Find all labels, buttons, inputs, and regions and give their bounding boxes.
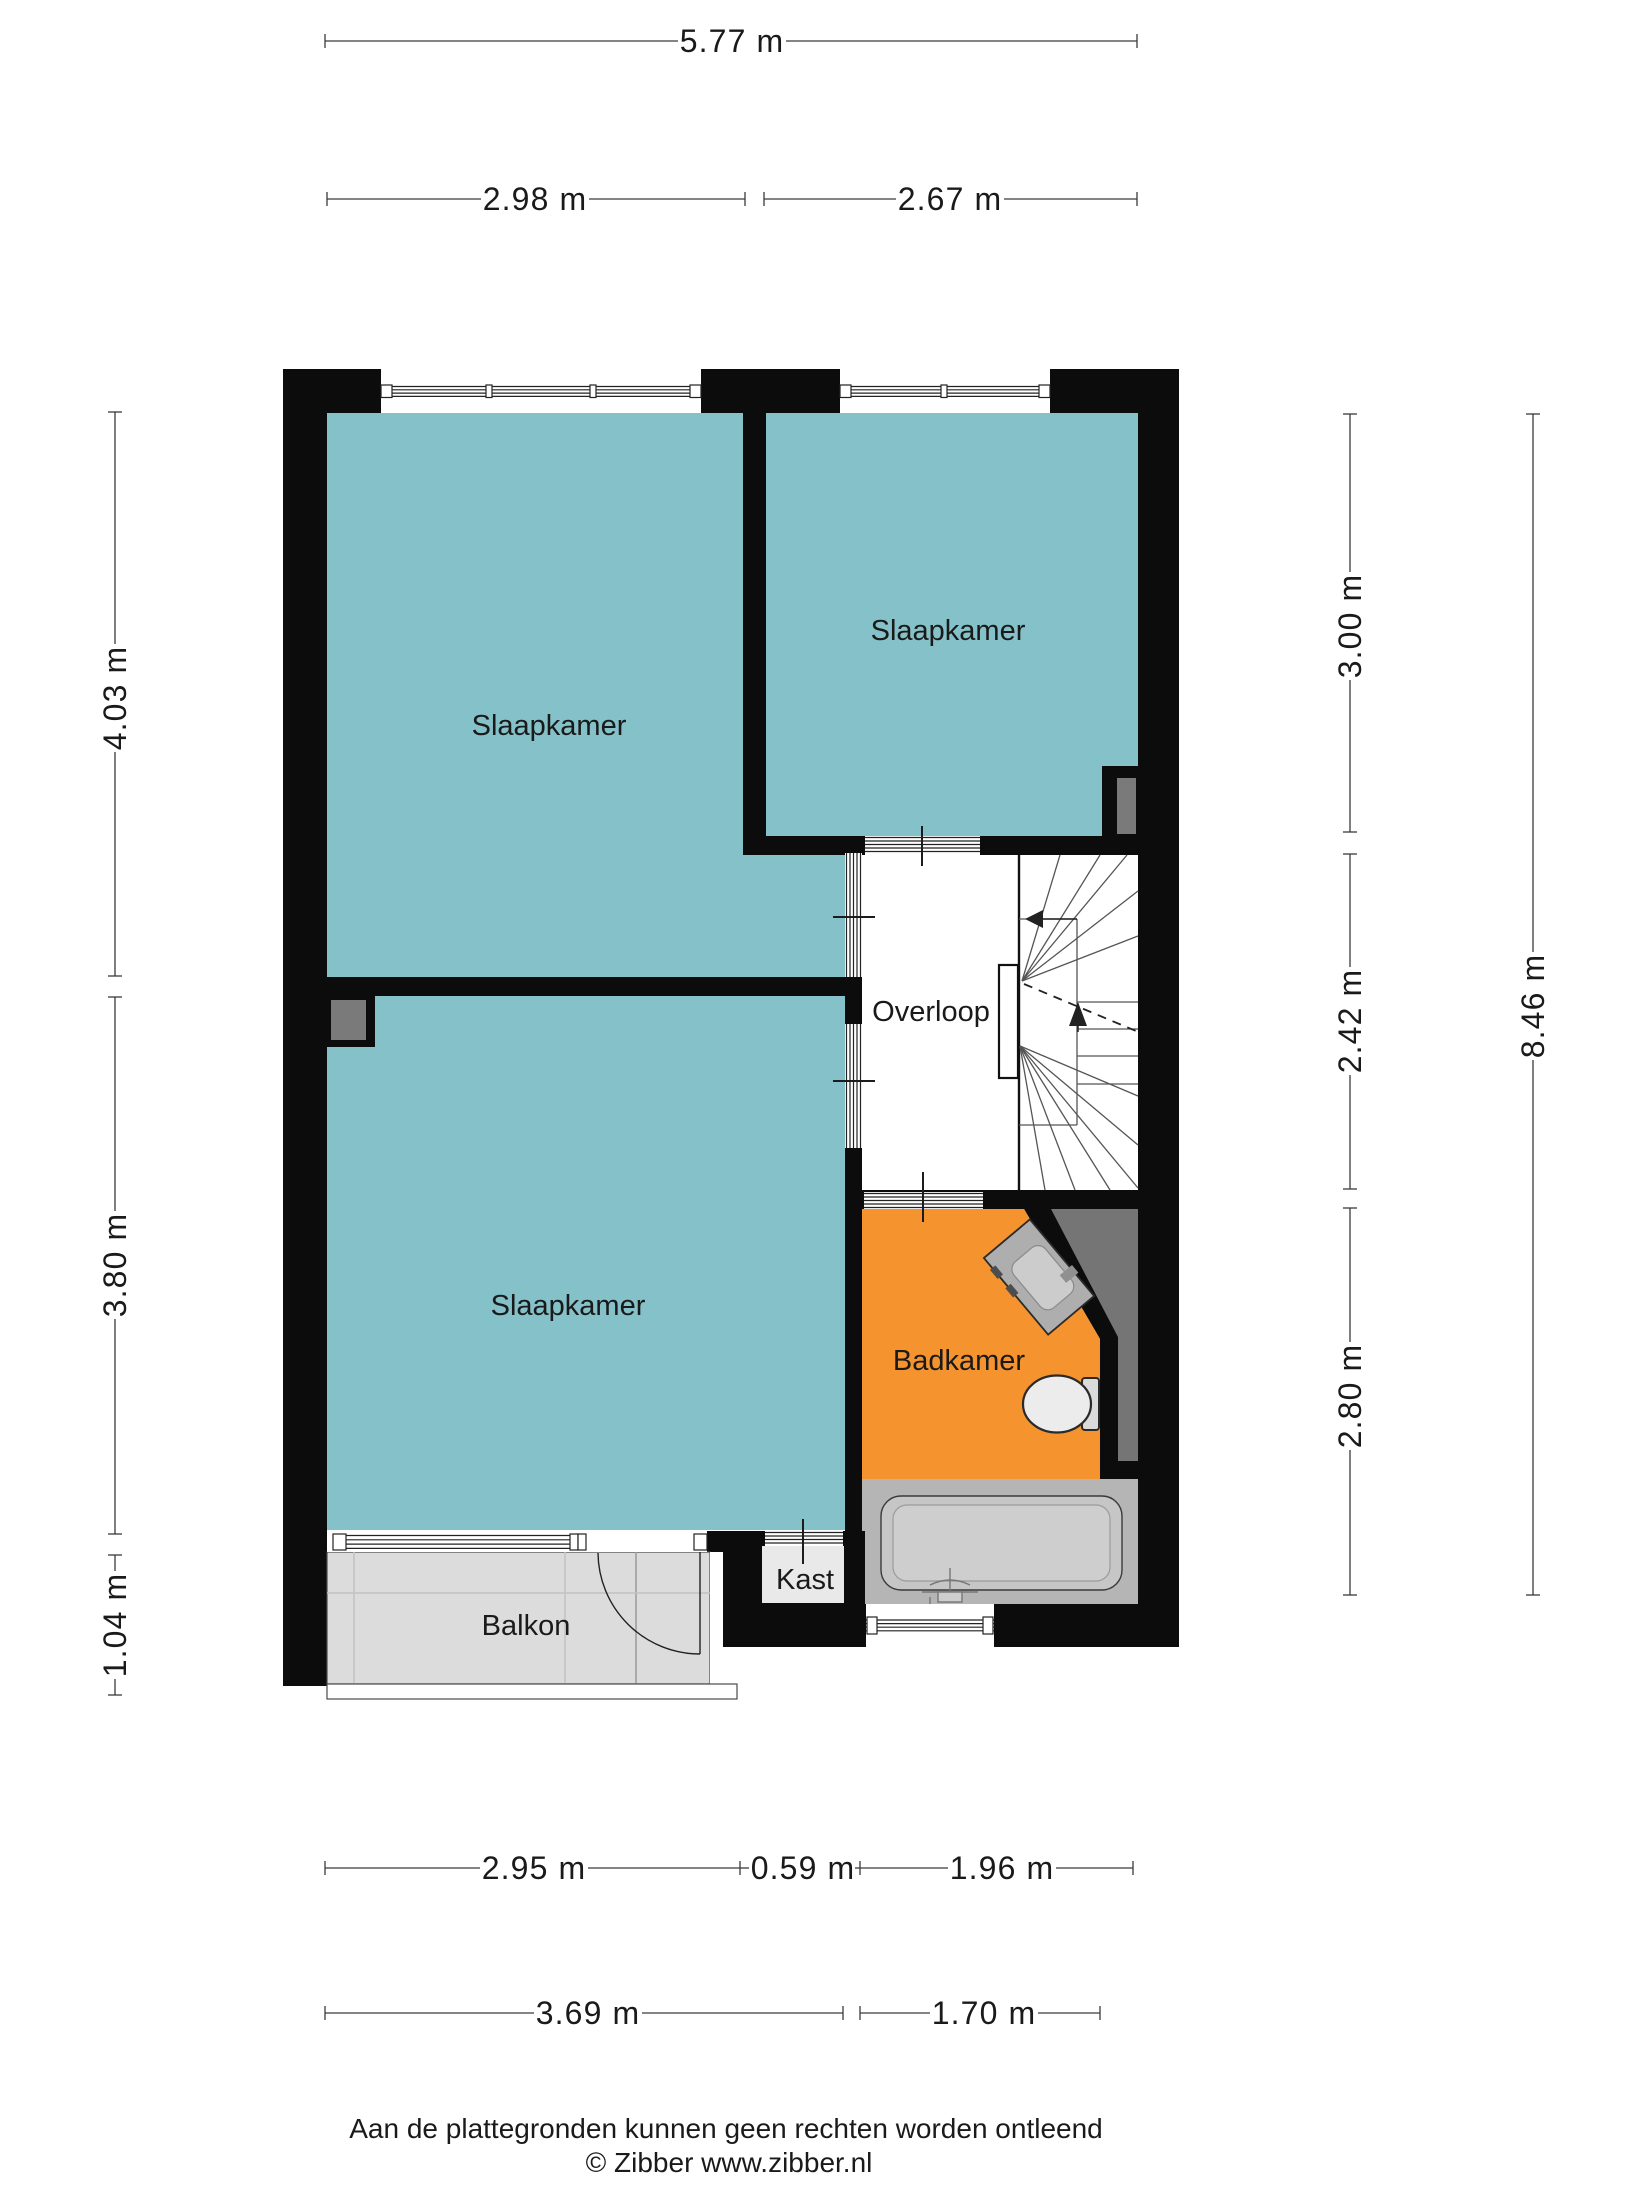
svg-text:2.95 m: 2.95 m — [482, 1850, 586, 1886]
svg-text:5.77 m: 5.77 m — [680, 23, 784, 59]
svg-text:Slaapkamer: Slaapkamer — [871, 615, 1026, 647]
svg-text:3.80 m: 3.80 m — [97, 1213, 133, 1317]
svg-text:1.70 m: 1.70 m — [932, 1995, 1036, 2031]
svg-text:Balkon: Balkon — [482, 1610, 571, 1642]
svg-text:2.67 m: 2.67 m — [898, 181, 1002, 217]
svg-text:1.04 m: 1.04 m — [97, 1573, 133, 1677]
svg-text:2.42 m: 2.42 m — [1332, 969, 1368, 1073]
svg-text:2.80 m: 2.80 m — [1332, 1344, 1368, 1448]
svg-text:Badkamer: Badkamer — [893, 1345, 1026, 1377]
svg-text:Aan de plattegronden kunnen ge: Aan de plattegronden kunnen geen rechten… — [349, 2113, 1102, 2144]
svg-text:0.59 m: 0.59 m — [751, 1850, 855, 1886]
svg-text:© Zibber www.zibber.nl: © Zibber www.zibber.nl — [586, 2147, 873, 2178]
svg-text:4.03 m: 4.03 m — [97, 646, 133, 750]
svg-text:Kast: Kast — [776, 1564, 834, 1596]
svg-text:1.96 m: 1.96 m — [950, 1850, 1054, 1886]
svg-text:8.46 m: 8.46 m — [1515, 954, 1551, 1058]
svg-text:Slaapkamer: Slaapkamer — [491, 1290, 646, 1322]
svg-text:3.69 m: 3.69 m — [536, 1995, 640, 2031]
svg-text:3.00 m: 3.00 m — [1332, 574, 1368, 678]
svg-text:Overloop: Overloop — [872, 996, 990, 1028]
svg-text:Slaapkamer: Slaapkamer — [472, 710, 627, 742]
svg-text:2.98 m: 2.98 m — [483, 181, 587, 217]
